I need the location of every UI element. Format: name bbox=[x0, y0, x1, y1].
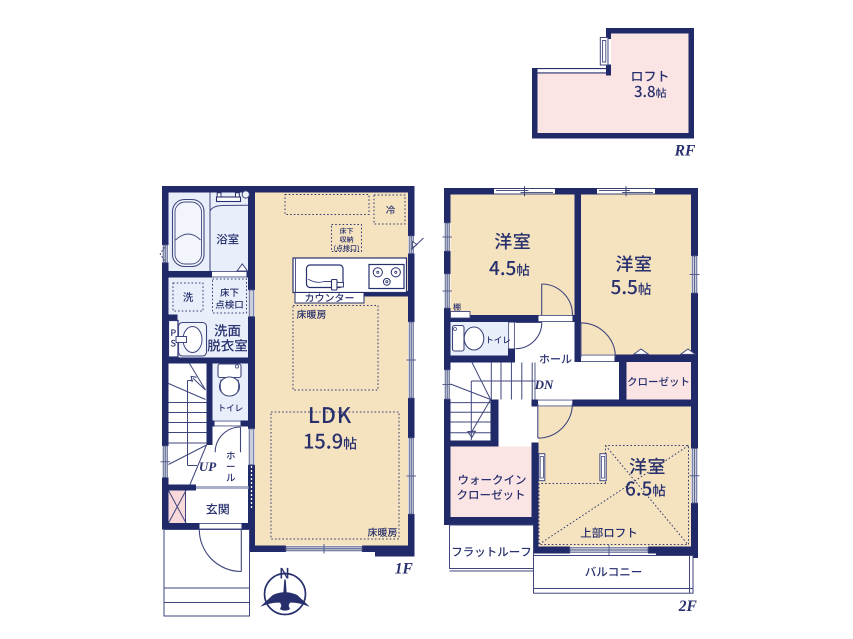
svg-text:ウォークイン: ウォークイン bbox=[458, 472, 527, 488]
svg-text:バルコニー: バルコニー bbox=[585, 564, 643, 580]
svg-text:フラットルーフ: フラットルーフ bbox=[451, 544, 532, 560]
svg-text:(点検口): (点検口) bbox=[334, 244, 360, 254]
svg-text:上部ロフト: 上部ロフト bbox=[580, 525, 638, 541]
svg-text:4.5帖: 4.5帖 bbox=[489, 254, 530, 281]
svg-text:点検口: 点検口 bbox=[215, 297, 244, 311]
svg-text:クローゼット: クローゼット bbox=[627, 375, 690, 390]
svg-text:トイレ: トイレ bbox=[485, 334, 511, 346]
svg-text:UP: UP bbox=[199, 459, 217, 474]
svg-text:床暖房: 床暖房 bbox=[368, 524, 398, 539]
svg-text:カウンター: カウンター bbox=[305, 289, 355, 304]
svg-text:RF: RF bbox=[674, 143, 696, 160]
svg-text:浴室: 浴室 bbox=[216, 232, 239, 248]
svg-text:トイレ: トイレ bbox=[218, 402, 244, 414]
svg-text:洋室: 洋室 bbox=[494, 228, 531, 254]
svg-text:ル: ル bbox=[226, 470, 236, 484]
svg-text:床暖房: 床暖房 bbox=[297, 306, 327, 321]
svg-text:冷: 冷 bbox=[386, 203, 396, 217]
svg-text:2F: 2F bbox=[678, 598, 698, 615]
svg-text:脱衣室: 脱衣室 bbox=[207, 335, 248, 355]
svg-text:1F: 1F bbox=[395, 561, 414, 578]
svg-text:棚: 棚 bbox=[453, 302, 461, 313]
svg-text:5.5帖: 5.5帖 bbox=[611, 273, 652, 300]
svg-text:DN: DN bbox=[534, 377, 554, 392]
svg-text:3.8帖: 3.8帖 bbox=[634, 81, 667, 102]
svg-text:洗: 洗 bbox=[183, 290, 194, 305]
svg-text:玄関: 玄関 bbox=[206, 501, 230, 518]
svg-text:6.5帖: 6.5帖 bbox=[625, 475, 666, 502]
svg-text:ホール: ホール bbox=[539, 351, 572, 367]
svg-text:クローゼット: クローゼット bbox=[457, 487, 526, 503]
